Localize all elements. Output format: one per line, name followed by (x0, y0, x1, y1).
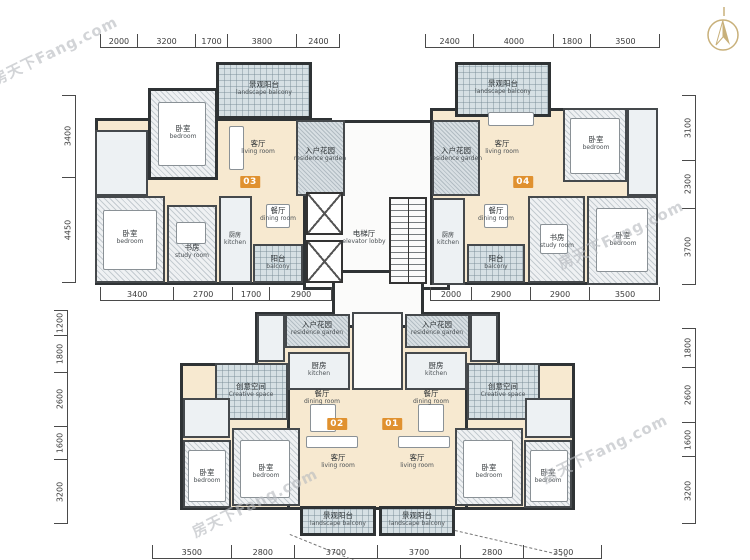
dim-segment: 3800 (227, 34, 296, 48)
room-label-dining-room: 餐厅dining room (413, 390, 449, 406)
dim-segment: 4450 (62, 177, 76, 283)
room-label-landscape-balcony: 景观阳台landscape balcony (236, 81, 292, 97)
dim-segment: 1800 (553, 34, 590, 48)
dim-segment: 1700 (195, 34, 227, 48)
room-label-bedroom: 卧室bedroom (117, 230, 144, 246)
dim-segment: 1800 (682, 328, 696, 367)
dim-segment: 3200 (137, 34, 195, 48)
dim-segment: 1600 (54, 426, 68, 459)
room-label-residence-garden: 入户花园residence garden (291, 321, 343, 337)
dim-segment: 3500 (523, 545, 602, 559)
room-label-balcony: 阳台balcony (266, 255, 289, 271)
dim-segment: 3400 (62, 95, 76, 177)
dim-segment: 3200 (54, 459, 68, 524)
room-label-bedroom: 卧室bedroom (170, 125, 197, 141)
dim-chain-bottom: 350028003700370028003500 (152, 545, 602, 558)
unit-badge-01: 01 (382, 418, 402, 430)
dim-chain-top-left: 20003200170038002400 (100, 34, 340, 47)
room-label-creative-space: 创意空间Creative space (229, 383, 274, 399)
watermark: 房天下Fang.com (0, 11, 121, 90)
dim-segment: 3500 (152, 545, 231, 559)
room-label-living-room: 客厅living room (321, 454, 355, 470)
dim-segment: 1700 (232, 287, 269, 301)
room-label-residence-garden: 入户花园residence garden (411, 321, 463, 337)
floorplan-canvas: 房天下Fang.com 房天下Fang.com 房天下Fang.com 房天下F… (0, 0, 750, 560)
dim-chain-right-upper: 310023003700 (682, 95, 695, 285)
room-label-kitchen: 厨房kitchen (437, 233, 459, 247)
dim-segment: 1600 (682, 422, 696, 456)
dim-segment: 2400 (296, 34, 340, 48)
dim-segment: 3500 (589, 287, 660, 301)
dim-chain-mid-right: 2000290029003500 (430, 287, 660, 300)
sofa (488, 112, 534, 126)
dim-segment: 2800 (231, 545, 294, 559)
dining-table (418, 404, 444, 432)
dim-segment: 2400 (425, 34, 473, 48)
room-label-bedroom: 卧室bedroom (583, 136, 610, 152)
room-label-dining-room: 餐厅dining room (260, 207, 296, 223)
room-label-study: 书房study room (175, 244, 209, 260)
dim-chain-left-lower: 12001800260016003200 (54, 310, 67, 524)
dim-segment: 3100 (682, 95, 696, 160)
room-label-living-room: 客厅living room (400, 454, 434, 470)
room-label-landscape-balcony: 景观阳台landscape balcony (475, 80, 531, 96)
sofa (306, 436, 358, 448)
dim-chain-right-lower: 1800260016003200 (682, 328, 695, 524)
room-label-bedroom: 卧室bedroom (476, 464, 503, 480)
bathroom (470, 314, 498, 362)
room-label-kitchen: 厨房kitchen (308, 362, 330, 378)
dim-segment: 3200 (682, 456, 696, 524)
bathroom (257, 314, 285, 362)
room-label-balcony: 阳台balcony (484, 255, 507, 271)
dim-segment: 3400 (100, 287, 173, 301)
room-label-dining-room: 餐厅dining room (304, 390, 340, 406)
dim-segment: 2000 (430, 287, 471, 301)
dim-segment: 3700 (682, 208, 696, 285)
room-label-elevator-lobby: 电梯厅elevator lobby (342, 230, 385, 246)
dim-chain-top-right: 2400400018003500 (425, 34, 660, 47)
unit-badge-03: 03 (240, 176, 260, 188)
elevator-shaft (306, 192, 343, 235)
dim-segment: 2700 (173, 287, 232, 301)
dim-segment: 2300 (682, 160, 696, 208)
room-label-landscape-balcony: 景观阳台landscape balcony (310, 512, 366, 528)
staircase (389, 197, 427, 284)
sofa (398, 436, 450, 448)
room-label-landscape-balcony: 景观阳台landscape balcony (389, 512, 445, 528)
room-label-kitchen: 厨房kitchen (425, 362, 447, 378)
dim-segment: 1800 (54, 335, 68, 372)
dim-segment: 2800 (460, 545, 523, 559)
dim-segment: 1200 (54, 310, 68, 335)
room-label-creative-space: 创意空间Creative space (481, 383, 526, 399)
dim-segment: 2900 (530, 287, 589, 301)
bathroom (525, 398, 572, 438)
bathroom (183, 398, 230, 438)
desk (176, 222, 206, 244)
room-label-bedroom: 卧室bedroom (194, 469, 221, 485)
room-label-residence-garden: 入户花园residence garden (294, 147, 346, 163)
hallway (352, 312, 403, 390)
room-label-living-room: 客厅living room (241, 140, 275, 156)
room-label-living-room: 客厅living room (485, 140, 519, 156)
bathroom (95, 130, 148, 196)
room-label-dining-room: 餐厅dining room (478, 207, 514, 223)
dim-segment: 2900 (269, 287, 332, 301)
dim-chain-mid-left: 3400270017002900 (100, 287, 332, 300)
unit-badge-04: 04 (513, 176, 533, 188)
dim-chain-left-upper: 34004450 (62, 95, 75, 283)
dim-segment: 2600 (54, 372, 68, 425)
room-label-residence-garden: 入户花园residence garden (430, 147, 482, 163)
dim-segment: 3700 (377, 545, 460, 559)
bathroom (627, 108, 658, 196)
dim-segment: 3500 (590, 34, 660, 48)
dim-segment: 4000 (473, 34, 553, 48)
dim-segment: 2600 (682, 367, 696, 422)
elevator-shaft (306, 240, 343, 283)
room-label-kitchen: 厨房kitchen (224, 233, 246, 247)
unit-badge-02: 02 (327, 418, 347, 430)
dim-segment: 2900 (471, 287, 530, 301)
north-arrow-icon (700, 4, 746, 58)
room-label-bedroom: 卧室bedroom (253, 464, 280, 480)
